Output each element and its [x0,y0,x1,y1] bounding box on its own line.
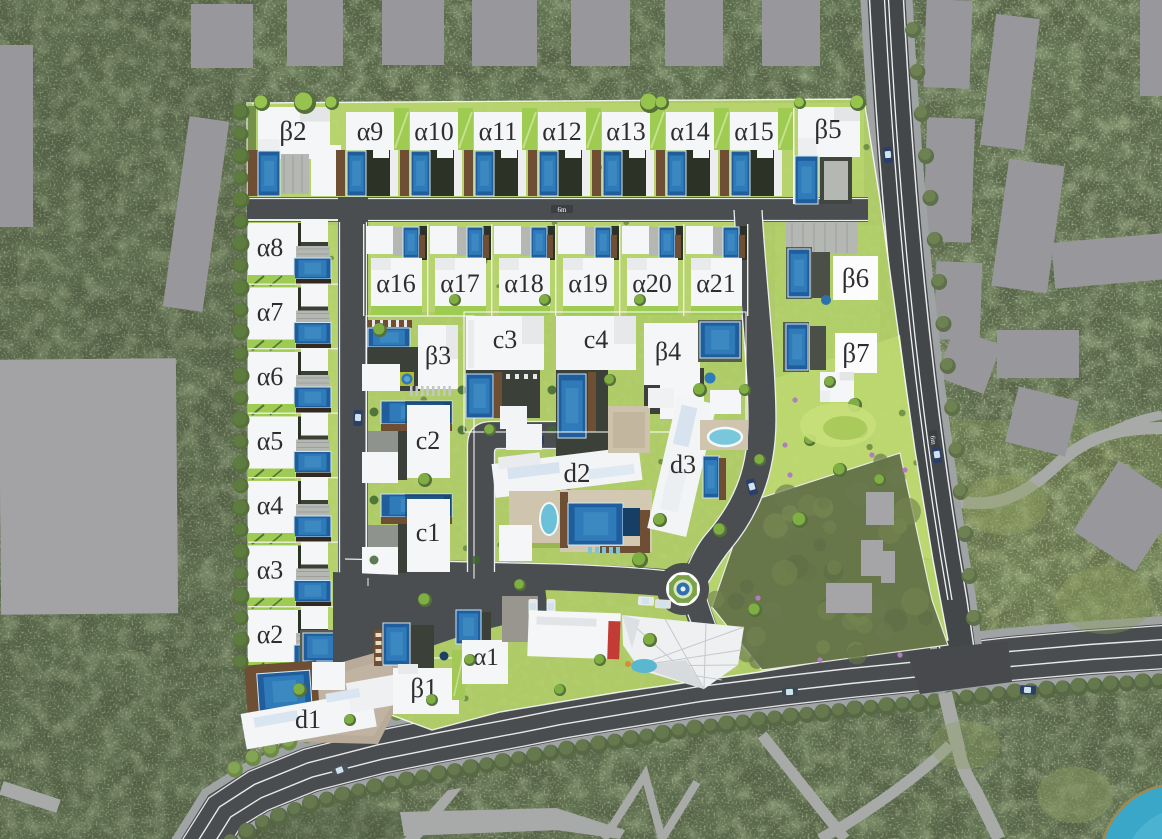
svg-text:α13: α13 [606,117,646,146]
svg-text:c2: c2 [416,426,441,455]
svg-text:α6: α6 [257,362,284,391]
svg-text:α9: α9 [357,117,384,146]
svg-text:c1: c1 [416,518,441,547]
svg-text:β4: β4 [655,337,681,366]
svg-text:6m: 6m [928,435,937,446]
svg-text:α15: α15 [734,117,774,146]
svg-text:α3: α3 [257,556,284,585]
svg-text:α10: α10 [414,117,454,146]
svg-text:β7: β7 [842,338,869,368]
svg-text:α12: α12 [542,117,582,146]
svg-text:β5: β5 [814,114,841,144]
svg-text:α14: α14 [670,117,710,146]
svg-text:α1: α1 [473,644,499,671]
svg-text:α2: α2 [257,620,284,649]
svg-text:α4: α4 [257,491,284,520]
svg-text:d1: d1 [295,705,321,734]
svg-text:α11: α11 [479,117,518,146]
svg-text:α18: α18 [504,269,544,298]
svg-text:c4: c4 [584,325,609,354]
svg-text:β2: β2 [279,116,306,146]
svg-text:α20: α20 [632,269,672,298]
svg-text:c3: c3 [493,325,518,354]
svg-text:β3: β3 [425,341,451,370]
svg-text:α21: α21 [696,269,736,298]
svg-text:α17: α17 [440,269,480,298]
svg-text:α19: α19 [568,269,608,298]
svg-text:α5: α5 [257,427,284,456]
svg-text:6m: 6m [558,206,568,214]
svg-text:α16: α16 [376,269,416,298]
svg-text:β6: β6 [842,263,869,293]
svg-text:d2: d2 [564,458,591,488]
svg-text:α8: α8 [257,233,284,262]
svg-text:α7: α7 [257,298,284,327]
svg-text:d3: d3 [670,450,696,479]
